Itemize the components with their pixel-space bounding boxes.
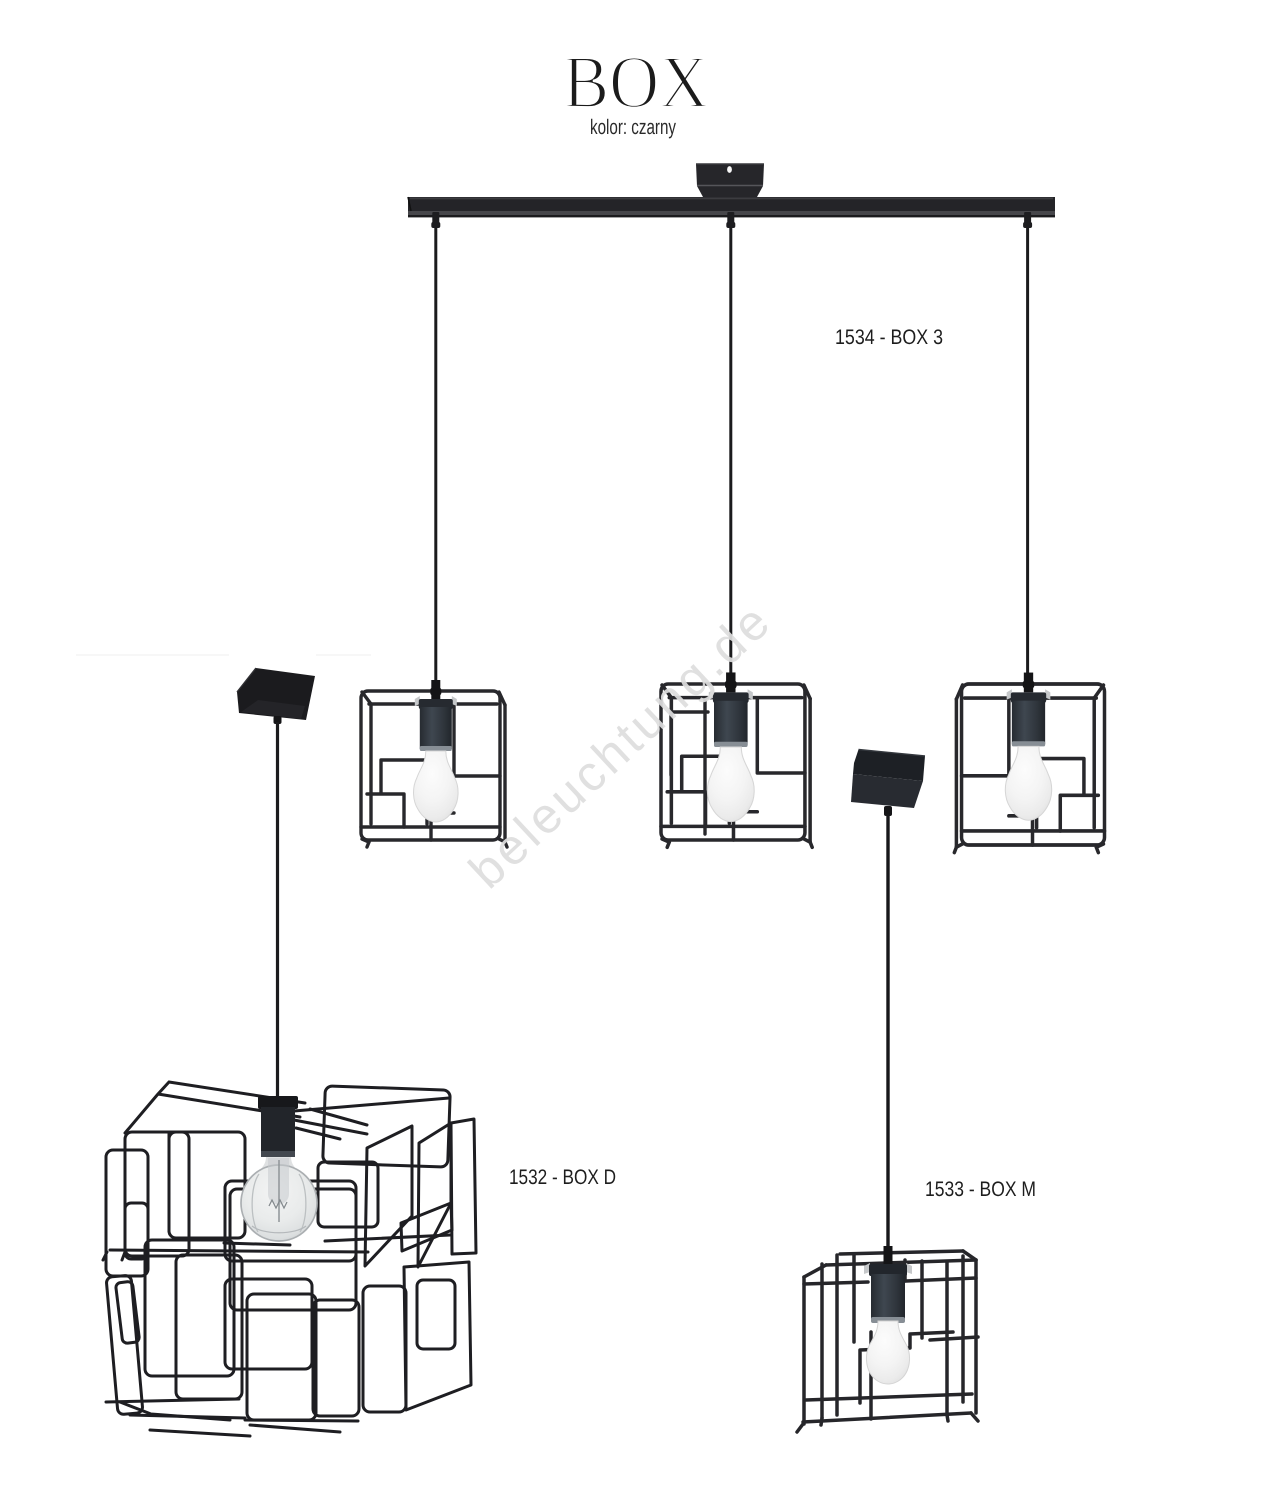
svg-text:1532 - BOX D: 1532 - BOX D [509, 1166, 616, 1189]
svg-text:BOX: BOX [563, 41, 709, 124]
svg-text:1534 - BOX 3: 1534 - BOX 3 [835, 326, 943, 349]
svg-text:1533 - BOX M: 1533 - BOX M [925, 1178, 1036, 1201]
svg-text:kolor: czarny: kolor: czarny [590, 116, 676, 139]
